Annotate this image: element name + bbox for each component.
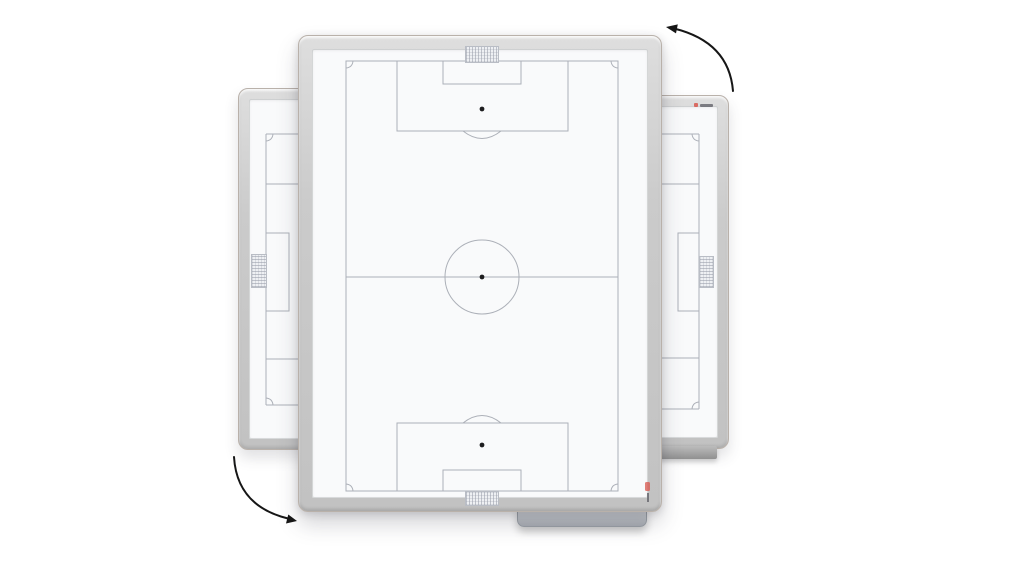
brand-logo-icon — [694, 103, 713, 107]
scene — [0, 0, 1024, 576]
goal-net-bottom — [465, 491, 499, 506]
pitch-markings-main — [312, 49, 648, 498]
brand-logo-vertical — [645, 482, 650, 504]
marker-tray-right-board — [659, 446, 717, 459]
whiteboard-main — [298, 35, 662, 512]
goal-net-top — [465, 46, 499, 63]
rotate-arrow-top-right[interactable] — [666, 24, 733, 91]
board-face-main — [312, 49, 648, 498]
brand-logo-wordmark — [647, 493, 649, 502]
goal-net-right-board — [699, 256, 714, 288]
goal-net-left-board — [251, 254, 267, 288]
pitch-spots — [480, 107, 485, 448]
brand-logo-mark — [694, 103, 698, 107]
brand-logo-wordmark — [700, 104, 713, 107]
rotate-arrow-bottom-left[interactable] — [234, 457, 297, 524]
brand-logo-mark — [645, 482, 650, 491]
